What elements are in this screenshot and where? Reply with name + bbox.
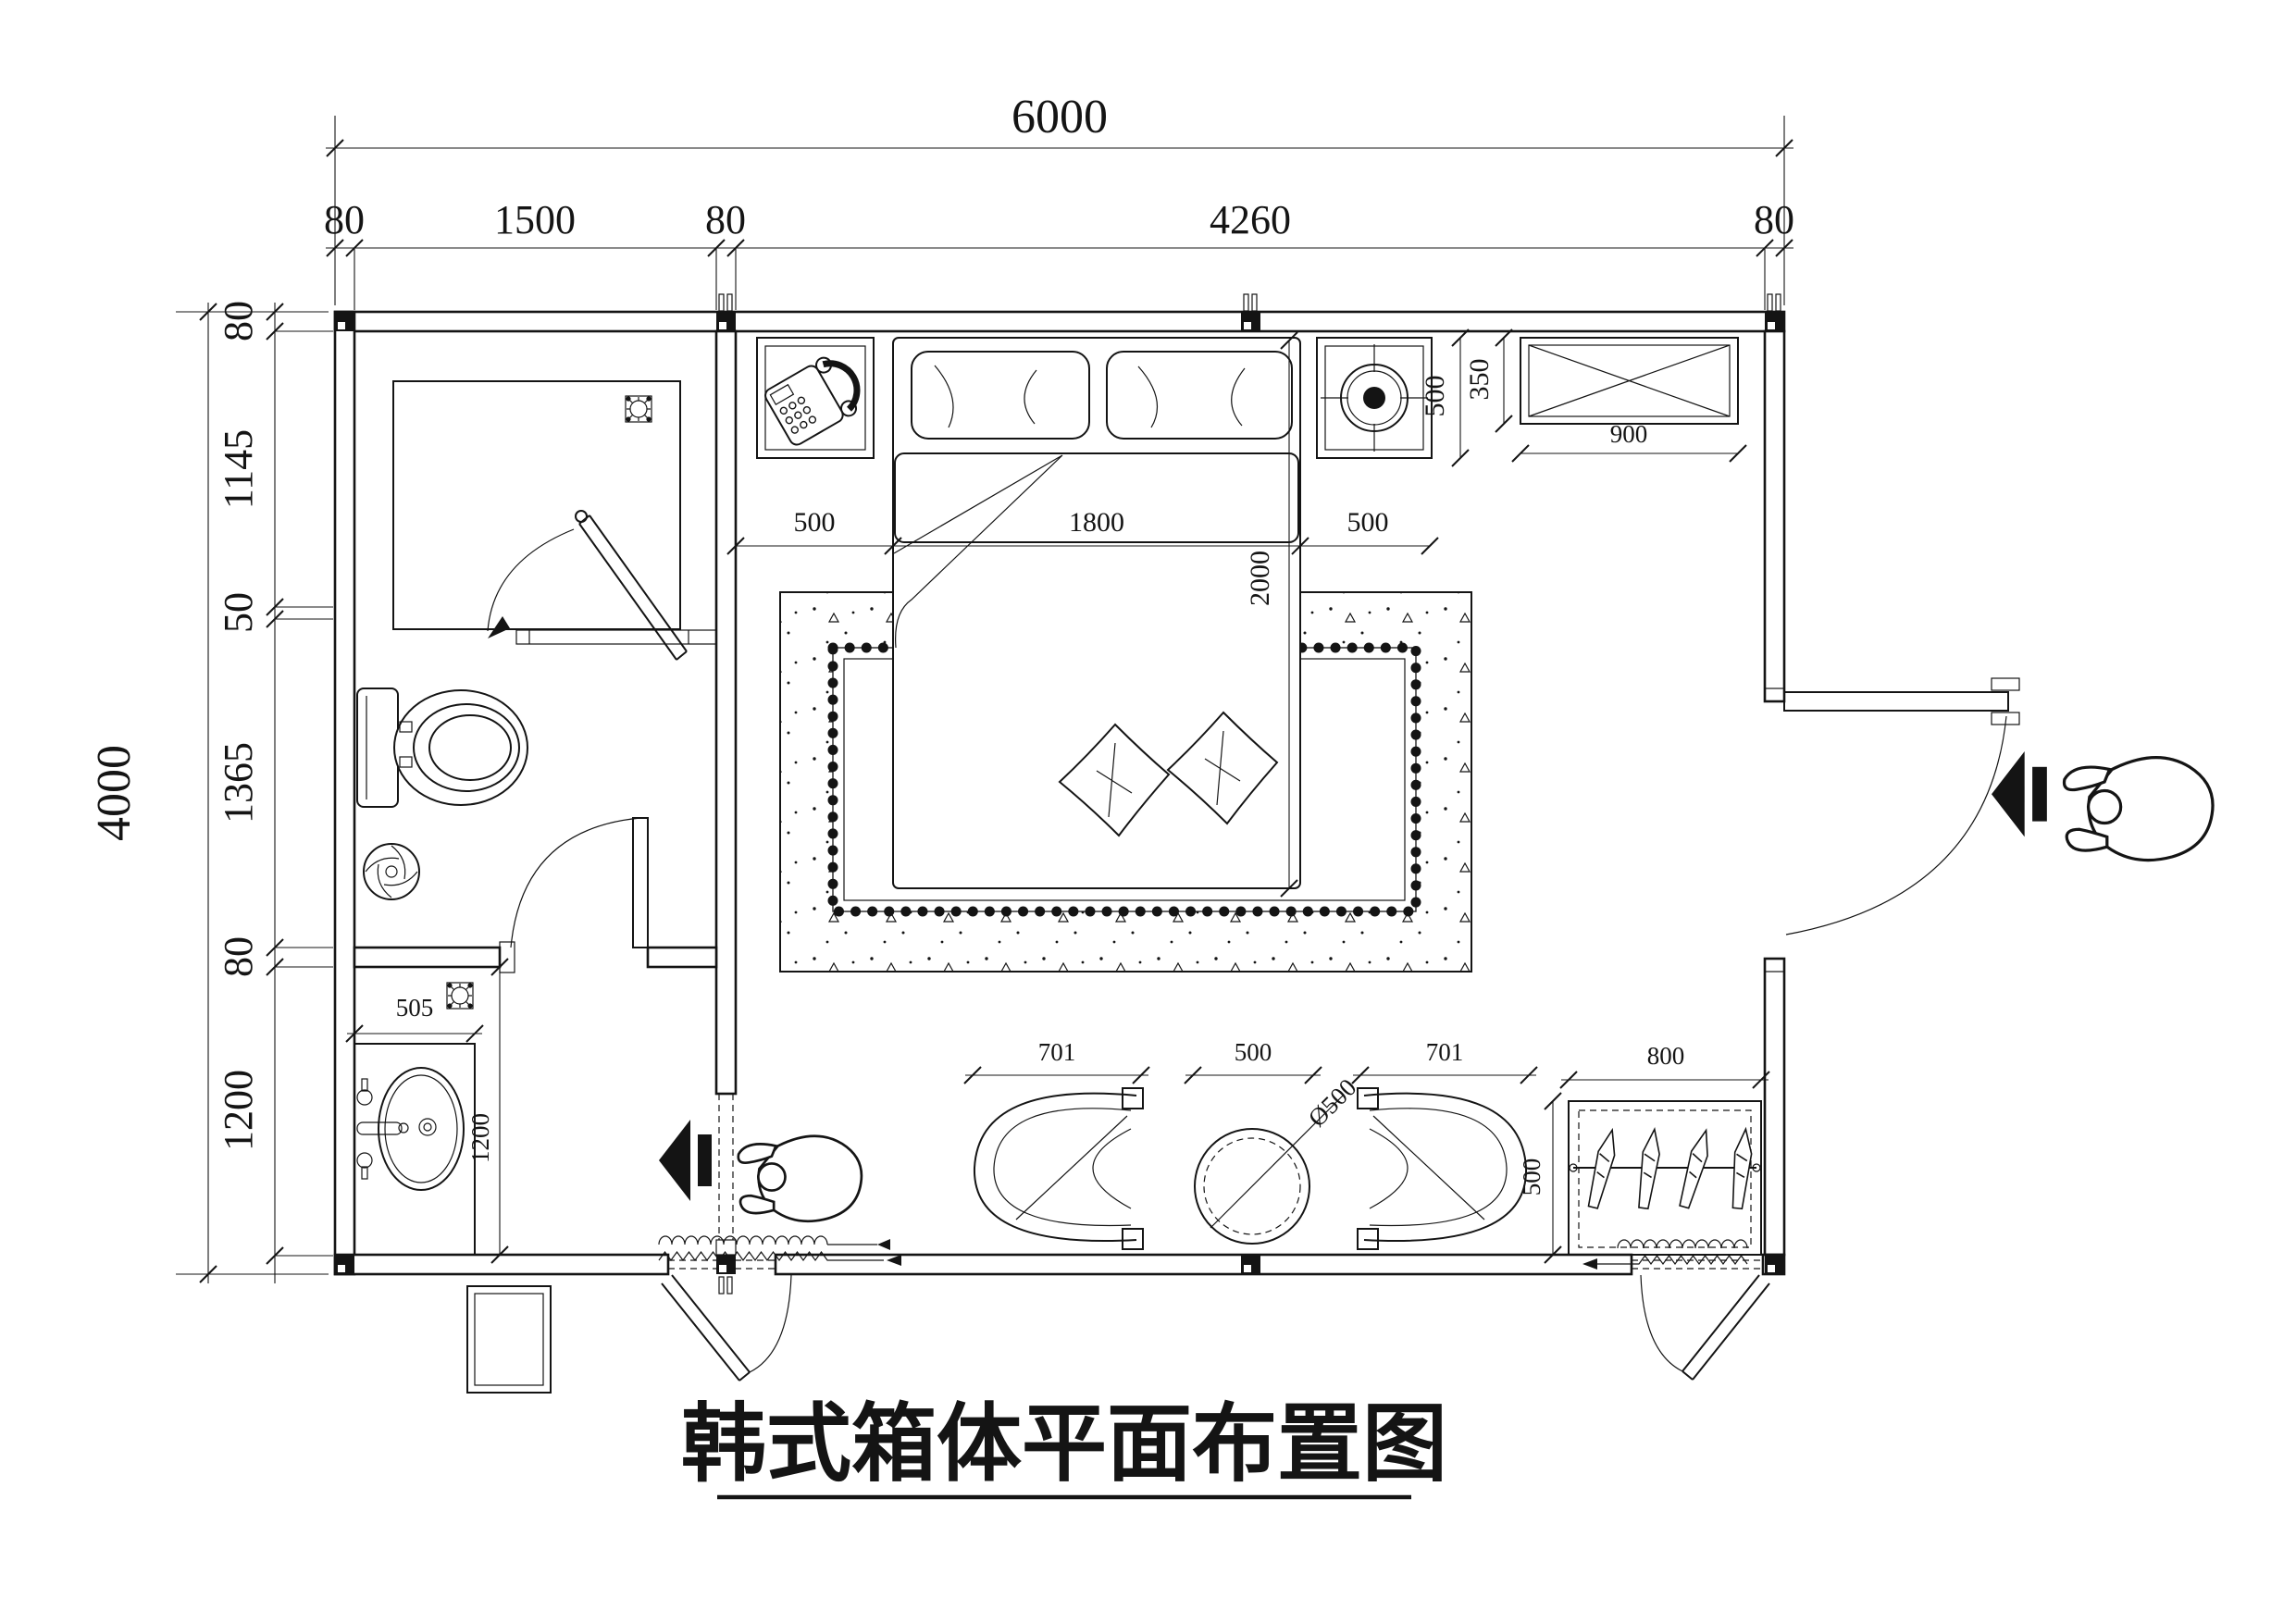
door-handle-icon	[576, 511, 587, 522]
dim-center-gap: 500	[1235, 1038, 1272, 1066]
vent-pipe-icon	[1768, 294, 1781, 311]
floor-drain-icon	[447, 983, 473, 1009]
pocket-door-dashed	[716, 1094, 736, 1255]
vent-pipe-icon	[1244, 294, 1257, 311]
entry-door	[662, 1275, 791, 1381]
wall-left	[335, 312, 354, 1274]
column-marker	[1241, 1255, 1260, 1274]
wall-bathroom-divider	[716, 331, 736, 1094]
wall-bottom-middle	[776, 1255, 1632, 1274]
dim-left-total: 4000	[88, 745, 141, 841]
person-figure	[2065, 758, 2214, 861]
dim-wardrobe-width: 800	[1647, 1042, 1685, 1070]
dim-left-chair: 701	[1038, 1038, 1076, 1066]
floor-plan-drawing: 6000 80 1500 80 4260 80 4000 80 1145 50 …	[0, 0, 2296, 1623]
direction-arrow-icon	[1992, 751, 2047, 836]
dim-vanity-width: 505	[396, 994, 434, 1022]
dim-top-seg-4: 80	[1754, 197, 1794, 242]
porch-step	[467, 1286, 551, 1393]
wall-bottom-left	[335, 1255, 668, 1274]
vent-pipe-icon	[719, 294, 732, 311]
door-swing-arc	[750, 1275, 791, 1372]
tv-cabinet	[1520, 338, 1738, 424]
door-jamb	[500, 942, 515, 973]
vanity-counter	[354, 1044, 475, 1255]
top-dimension-chain: 6000 80 1500 80 4260 80	[324, 91, 1794, 310]
chair-right	[1358, 1088, 1526, 1249]
column-marker	[716, 312, 736, 331]
swing-arrow-icon	[488, 616, 510, 638]
dim-top-seg-1: 1500	[494, 197, 576, 242]
dim-top-seg-3: 4260	[1210, 197, 1291, 242]
vent-pipe-icon	[719, 1277, 732, 1294]
person-figure	[738, 1136, 862, 1221]
vanity	[354, 983, 475, 1255]
dim-left-seg-1: 1145	[216, 429, 261, 509]
dim-top-total: 6000	[1011, 91, 1108, 143]
dim-bed-right-gap: 500	[1347, 507, 1389, 538]
swirl-drain-icon	[364, 844, 419, 899]
wall-toilet-room-stub	[648, 948, 716, 967]
dim-cabinet-width: 900	[1610, 420, 1648, 448]
chair-left	[974, 1088, 1143, 1249]
column-marker	[335, 312, 354, 331]
seating-dimensions: 701 500 701	[964, 1038, 1537, 1084]
round-table: Ø500	[1195, 1073, 1361, 1244]
floor-drain-icon	[626, 396, 652, 422]
faucet-icon	[357, 1079, 408, 1179]
dim-bed-length: 2000	[1245, 551, 1275, 606]
toilet	[357, 688, 527, 807]
dim-bed-width: 1800	[1069, 507, 1124, 538]
nightstand-left	[757, 338, 874, 458]
shower-tray	[393, 381, 680, 629]
wall-right-upper	[1765, 331, 1784, 701]
column-marker	[335, 1255, 354, 1274]
column-marker	[1241, 312, 1260, 331]
dim-vanity-length: 1200	[466, 1113, 494, 1163]
bathroom-door	[511, 818, 648, 948]
door-leaf	[1784, 692, 2008, 711]
page-title: 韩式箱体平面布置图	[681, 1397, 1447, 1492]
door-swing-arc	[1786, 716, 2006, 935]
dim-top-seg-0: 80	[324, 197, 365, 242]
dim-bed-left-gap: 500	[794, 507, 836, 538]
door-swing-arc	[1641, 1275, 1682, 1371]
bed	[893, 338, 1300, 888]
dim-top-seg-2: 80	[705, 197, 746, 242]
sink	[379, 1068, 464, 1190]
floor-plan-page: 6000 80 1500 80 4260 80 4000 80 1145 50 …	[0, 0, 2296, 1623]
dim-left-seg-0: 80	[216, 301, 261, 341]
dim-left-seg-2: 50	[216, 592, 261, 633]
dim-left-seg-4: 80	[216, 936, 261, 977]
dim-cabinet-depth: 350	[1464, 359, 1495, 401]
dim-nightstand-depth: 500	[1420, 376, 1450, 417]
direction-arrow-icon	[659, 1120, 712, 1201]
shower-threshold	[516, 630, 716, 644]
dim-wardrobe-depth: 500	[1518, 1158, 1545, 1196]
wardrobe: 800 500	[1518, 1042, 1769, 1263]
side-door	[1784, 678, 2019, 935]
column-marker	[1765, 312, 1784, 331]
seating-area: Ø500 701 500 701	[964, 1038, 1537, 1249]
dim-right-chair: 701	[1426, 1038, 1464, 1066]
dim-left-seg-5: 1200	[216, 1070, 261, 1151]
shower-door	[488, 511, 687, 660]
wall-top	[335, 312, 1784, 331]
left-dimension-chain: 4000 80 1145 50 1365 80 1200	[88, 301, 333, 1283]
telephone-icon	[763, 349, 870, 448]
wall-right-lower	[1765, 959, 1784, 1255]
bedroom: 500 1800 500 2000 500 350 900	[727, 329, 1746, 972]
column-marker	[1765, 1255, 1784, 1274]
nightstand-right	[1317, 338, 1432, 458]
wall-toilet-room	[354, 948, 500, 967]
bottom-right-door	[1641, 1275, 1769, 1380]
dim-left-seg-3: 1365	[216, 742, 261, 824]
vanity-dimensions: 505 1200	[346, 959, 508, 1263]
ceiling-speaker-icon	[1321, 344, 1428, 452]
bathroom: 505 1200	[346, 381, 716, 1263]
